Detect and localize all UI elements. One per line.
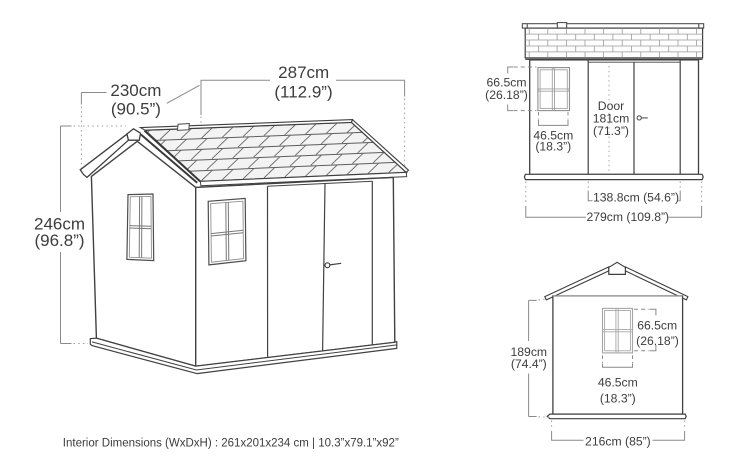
- svg-text:287cm: 287cm: [278, 63, 329, 82]
- svg-text:138.8cm (54.6”): 138.8cm (54.6”): [593, 191, 679, 205]
- svg-text:(71.3”): (71.3”): [593, 124, 629, 138]
- svg-text:(18.3”): (18.3”): [535, 140, 571, 154]
- svg-text:(26.18”): (26.18”): [636, 334, 679, 348]
- svg-text:(74.4”): (74.4”): [511, 357, 547, 371]
- svg-text:66.5cm: 66.5cm: [637, 318, 677, 332]
- svg-text:(18.3”): (18.3”): [600, 391, 636, 405]
- svg-text:Interior Dimensions (WxDxH) :: Interior Dimensions (WxDxH) : 261x201x23…: [63, 438, 399, 450]
- svg-text:279cm (109.8”): 279cm (109.8”): [586, 210, 669, 224]
- svg-text:216cm (85”): 216cm (85”): [585, 435, 651, 449]
- svg-text:230cm: 230cm: [110, 81, 161, 100]
- svg-text:(26.18”): (26.18”): [485, 88, 528, 102]
- svg-text:(112.9”): (112.9”): [274, 82, 332, 101]
- svg-text:(96.8”): (96.8”): [34, 231, 84, 250]
- svg-text:(90.5”): (90.5”): [111, 100, 161, 119]
- svg-text:46.5cm: 46.5cm: [598, 375, 638, 389]
